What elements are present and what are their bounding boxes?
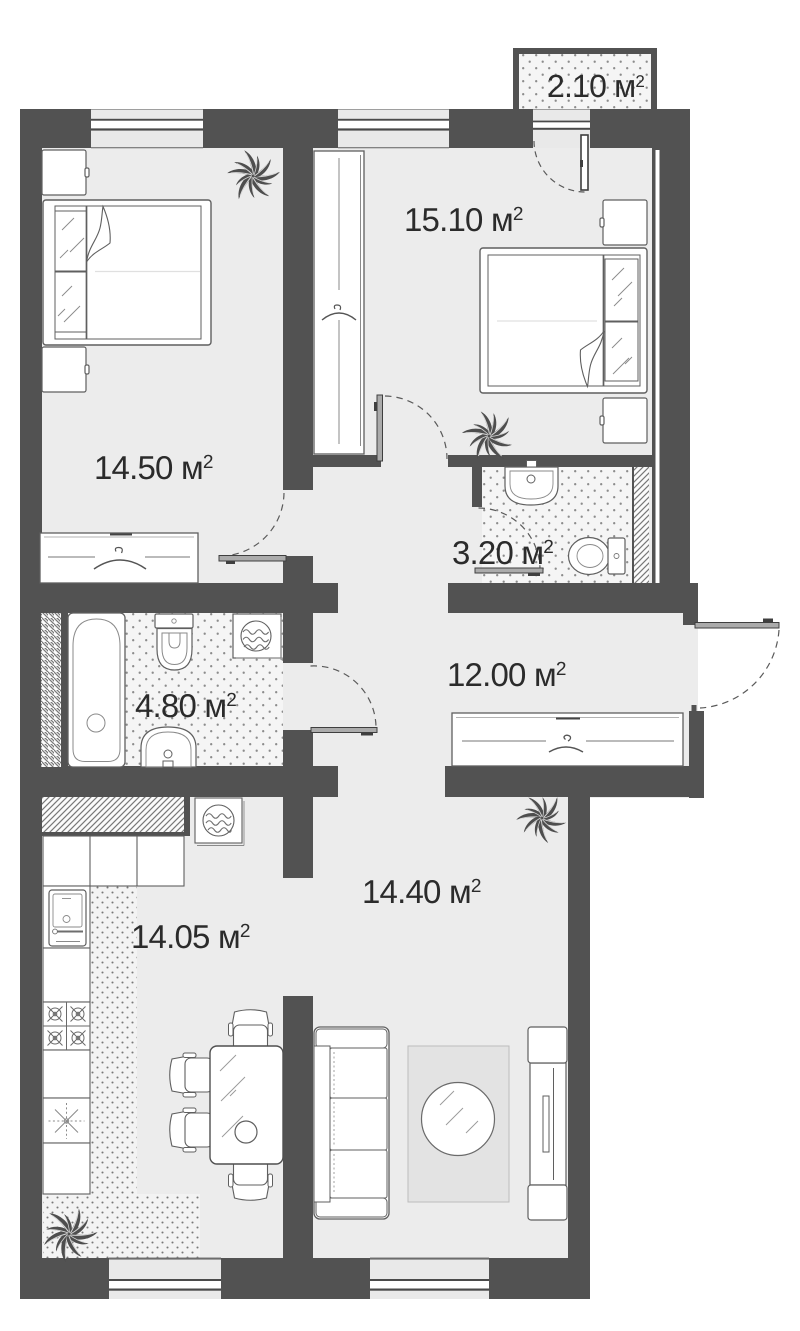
svg-text:15.10 м2: 15.10 м2 (404, 201, 523, 238)
svg-text:14.40 м2: 14.40 м2 (362, 873, 481, 910)
svg-text:12.00 м2: 12.00 м2 (447, 656, 566, 693)
svg-text:4.80 м2: 4.80 м2 (135, 687, 236, 724)
svg-text:2.10 м2: 2.10 м2 (547, 68, 644, 104)
svg-text:14.50 м2: 14.50 м2 (94, 449, 213, 486)
svg-text:14.05 м2: 14.05 м2 (131, 918, 250, 955)
svg-text:3.20 м2: 3.20 м2 (452, 534, 553, 571)
